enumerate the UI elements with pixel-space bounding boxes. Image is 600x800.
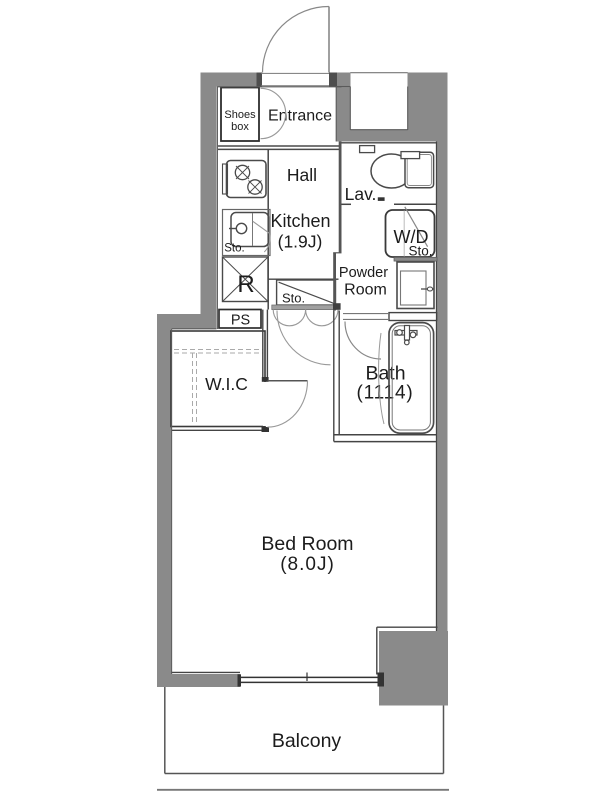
svg-text:Bed Room: Bed Room xyxy=(261,533,353,555)
svg-text:Lav.: Lav. xyxy=(345,184,377,204)
svg-text:Powder: Powder xyxy=(339,265,388,281)
svg-text:(1.9J): (1.9J) xyxy=(278,232,323,252)
svg-text:W.I.C: W.I.C xyxy=(205,374,248,394)
svg-text:Sto.: Sto. xyxy=(282,291,305,306)
svg-text:(8.0J): (8.0J) xyxy=(280,554,335,575)
svg-text:Hall: Hall xyxy=(287,165,317,185)
svg-text:R: R xyxy=(237,271,254,298)
svg-text:Bath: Bath xyxy=(365,363,405,385)
svg-text:box: box xyxy=(231,121,249,133)
svg-text:(1114): (1114) xyxy=(357,383,414,404)
svg-text:Sto.: Sto. xyxy=(224,243,244,255)
svg-text:Shoes: Shoes xyxy=(224,109,256,121)
svg-text:Sto.: Sto. xyxy=(408,244,432,259)
svg-text:PS: PS xyxy=(231,313,250,329)
svg-text:Room: Room xyxy=(344,282,387,299)
svg-text:Entrance: Entrance xyxy=(268,108,332,125)
svg-text:Kitchen: Kitchen xyxy=(270,211,330,231)
svg-text:Balcony: Balcony xyxy=(272,730,342,752)
